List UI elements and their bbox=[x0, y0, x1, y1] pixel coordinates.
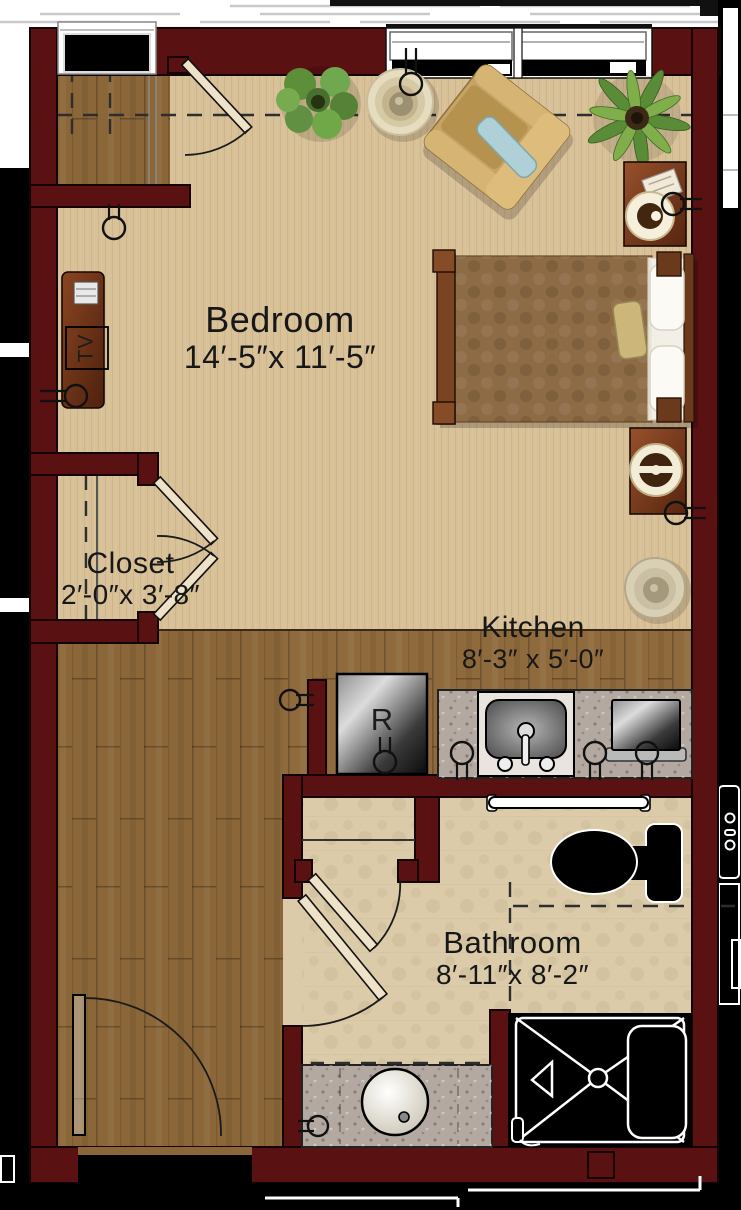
bedroom-label: Bedroom 14′-5″x 11′-5″ bbox=[105, 300, 455, 374]
bedroom-name: Bedroom bbox=[105, 300, 455, 340]
kitchen-label: Kitchen 8′-3″ x 5′-0″ bbox=[408, 612, 658, 674]
floor-plan: Bedroom 14′-5″x 11′-5″ Closet 2′-0″x 3′-… bbox=[0, 0, 741, 1210]
vanity-sink bbox=[362, 1069, 428, 1135]
kitchen-name: Kitchen bbox=[408, 612, 658, 644]
bed bbox=[433, 250, 698, 428]
bathroom-name: Bathroom bbox=[385, 926, 640, 960]
shower-drain-icon bbox=[589, 1069, 607, 1087]
kitchen-pier bbox=[308, 680, 326, 790]
window-right-double bbox=[386, 24, 652, 78]
refrigerator-label: R bbox=[337, 690, 427, 750]
bathroom-dimensions: 8′-11″x 8′-2″ bbox=[385, 960, 640, 990]
vanity bbox=[302, 1065, 492, 1147]
right-wall bbox=[692, 28, 718, 1183]
closet-name: Closet bbox=[28, 548, 233, 580]
tv-label: TV bbox=[64, 326, 108, 370]
nightstand-top bbox=[624, 162, 686, 246]
kitchen-sink bbox=[478, 692, 574, 776]
refrigerator-letter: R bbox=[371, 702, 393, 738]
headboard bbox=[684, 254, 694, 422]
entry-closet-wall bbox=[30, 185, 190, 207]
media-player-icon bbox=[74, 282, 98, 304]
closet-dimensions: 2′-0″x 3′-8″ bbox=[28, 580, 233, 610]
drain-icon bbox=[399, 1112, 409, 1122]
window-left bbox=[58, 22, 156, 74]
bathroom-label: Bathroom 8′-11″x 8′-2″ bbox=[385, 926, 640, 990]
tv-letters: TV bbox=[74, 334, 98, 363]
microwave bbox=[606, 700, 686, 761]
shower bbox=[508, 1013, 692, 1147]
closet-label: Closet 2′-0″x 3′-8″ bbox=[28, 548, 233, 610]
grab-bar bbox=[487, 795, 650, 811]
shower-bench bbox=[628, 1026, 686, 1138]
kitchen-dimensions: 8′-3″ x 5′-0″ bbox=[408, 644, 658, 674]
bedroom-dimensions: 14′-5″x 11′-5″ bbox=[105, 340, 455, 374]
